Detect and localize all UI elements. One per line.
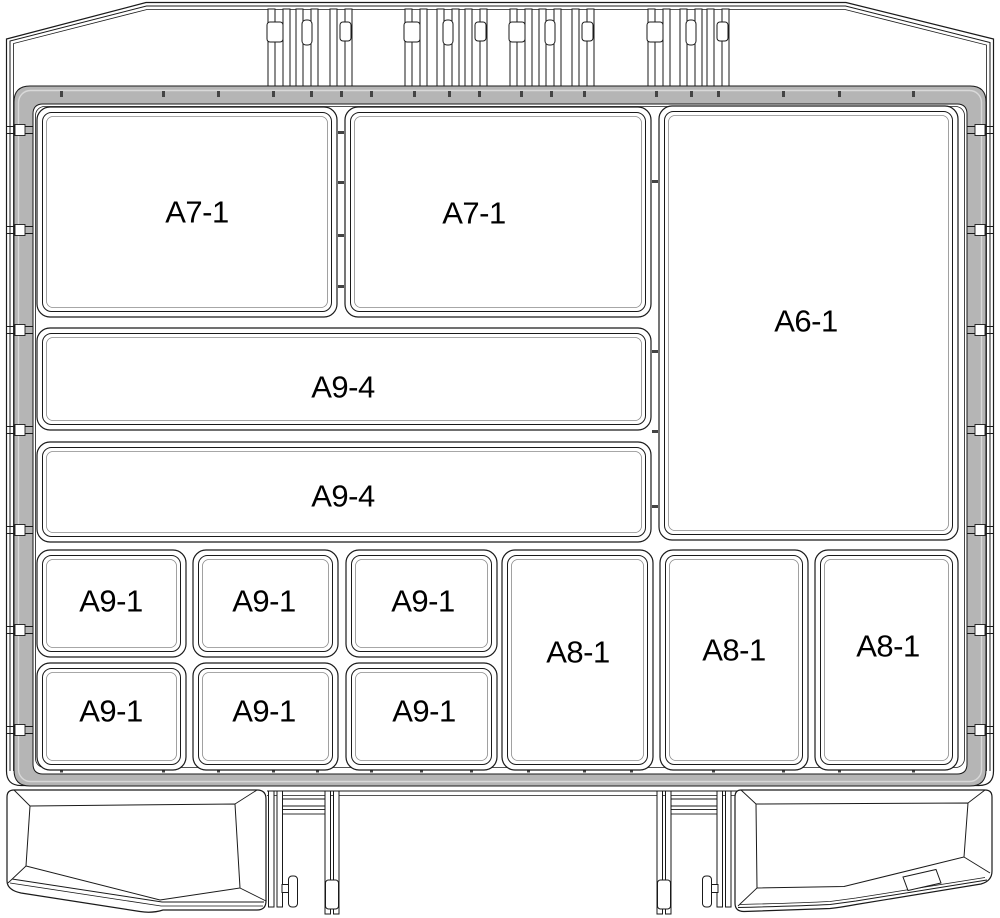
compartment-label: A9-1	[79, 584, 142, 619]
rim-side-clip-block	[15, 625, 25, 636]
rim-dash-mark	[448, 91, 451, 97]
rim-side-clip-block	[15, 125, 25, 136]
clip-bar	[554, 9, 561, 88]
clip-knob	[326, 880, 339, 909]
rim-side-clip-block	[975, 125, 985, 136]
technical-drawing-page: A7-1A7-1A6-1A9-4A9-4A9-1A9-1A9-1A8-1A8-1…	[0, 0, 1000, 918]
compartment: A8-1	[502, 550, 653, 770]
divider-dash-mark	[338, 131, 344, 134]
divider-dash-mark	[652, 430, 658, 433]
divider-dash-mark	[338, 285, 344, 288]
rim-dash-mark	[655, 91, 658, 97]
clip-latch-bump	[717, 22, 728, 41]
rim-dash-mark	[717, 91, 720, 97]
clip-latch-bump	[582, 22, 593, 41]
rim-dash-mark	[690, 91, 693, 97]
rim-side-clip-block	[15, 725, 25, 736]
rim-side-clip-block	[975, 625, 985, 636]
compartment-label: A8-1	[702, 633, 765, 668]
compartment: A7-1	[345, 107, 651, 317]
compartment-label: A9-1	[232, 694, 295, 729]
clip-knob	[289, 876, 298, 907]
clip-latch-bump	[545, 20, 555, 45]
divider-dash-mark	[338, 181, 344, 184]
rim-dash-mark	[583, 91, 586, 97]
compartment-label: A9-1	[79, 694, 142, 729]
organizer-insert-drawing: A7-1A7-1A6-1A9-4A9-4A9-1A9-1A9-1A8-1A8-1…	[0, 0, 1000, 918]
clip-bar	[695, 9, 702, 88]
clip-latch-bump	[443, 20, 453, 45]
compartment: A9-1	[193, 550, 338, 657]
compartment: A9-1	[346, 550, 497, 657]
clip-latch-bump	[267, 22, 283, 42]
rim-dash-mark	[370, 91, 373, 97]
compartment: A7-1	[37, 107, 337, 317]
rim-dash-mark	[272, 91, 275, 97]
clip-latch-bump	[475, 22, 486, 41]
clip-latch-bump	[647, 22, 663, 42]
left-foot	[7, 790, 266, 912]
rim-dash-mark	[413, 91, 416, 97]
compartment-label: A7-1	[165, 195, 228, 230]
bottom-clips	[269, 791, 732, 914]
clip-bar	[437, 9, 444, 88]
clip-post-bar	[726, 791, 732, 907]
clip-bar	[572, 9, 579, 88]
rim-dash-mark	[478, 91, 481, 97]
clip-cross-link	[671, 810, 717, 815]
clip-bar	[268, 9, 275, 88]
rim-side-clip-block	[975, 725, 985, 736]
rim-dash-mark	[550, 91, 553, 97]
compartment: A9-1	[37, 663, 186, 770]
clip-bar	[330, 9, 337, 88]
clip-cross-link	[671, 799, 717, 806]
clip-latch-bump	[509, 22, 525, 42]
clip-post-bar	[269, 791, 275, 907]
rim-side-clip-block	[15, 525, 25, 536]
clip-bar	[663, 9, 670, 88]
rim-dash-mark	[60, 91, 63, 97]
right-foot	[735, 790, 992, 912]
clip-bar	[405, 9, 412, 88]
clip-bar	[648, 9, 655, 88]
bottom-clip-post	[703, 791, 732, 907]
compartment: A8-1	[660, 550, 808, 770]
clip-latch-bump	[686, 20, 696, 45]
clip-cross-link	[283, 799, 326, 806]
divider-dash-mark	[338, 234, 344, 237]
clip-bar	[510, 9, 517, 88]
clip-bar	[539, 9, 546, 88]
rim-side-clip-block	[15, 225, 25, 236]
rim-side-clip-block	[15, 325, 25, 336]
clip-bar	[296, 9, 303, 88]
rim-dash-mark	[310, 91, 313, 97]
bottom-clip-post	[325, 791, 339, 914]
compartment-label: A8-1	[546, 635, 609, 670]
compartment: A9-4	[37, 442, 651, 542]
clip-bar	[311, 9, 318, 88]
rim-dash-mark	[838, 91, 841, 97]
compartment: A9-1	[37, 550, 186, 657]
clip-bar	[420, 9, 427, 88]
bottom-feet	[7, 790, 992, 912]
compartment: A9-4	[37, 328, 651, 430]
compartment-label: A9-1	[392, 694, 455, 729]
rim-side-clip-block	[15, 425, 25, 436]
compartment-label: A8-1	[856, 629, 919, 664]
clip-latch-bump	[302, 20, 312, 45]
bottom-clip-post	[269, 791, 298, 907]
compartment-label: A9-4	[311, 370, 375, 405]
rim-dash-mark	[162, 91, 165, 97]
rim-dash-mark	[912, 91, 915, 97]
compartment: A9-1	[193, 663, 338, 770]
clip-bar	[525, 9, 532, 88]
compartment-label: A7-1	[442, 196, 505, 231]
clip-knob	[703, 876, 712, 907]
rim-dash-mark	[782, 91, 785, 97]
compartment-label: A9-4	[311, 479, 375, 514]
clip-knob	[658, 880, 671, 909]
clip-bar	[283, 9, 290, 88]
clip-bar	[680, 9, 687, 88]
compartment: A9-1	[346, 663, 497, 770]
divider-dash-mark	[652, 180, 658, 183]
rim-side-clip-block	[975, 325, 985, 336]
compartment-label: A9-1	[391, 584, 454, 619]
rim-side-clip-block	[975, 425, 985, 436]
bottom-clip-post	[657, 791, 671, 914]
clip-bar	[452, 9, 459, 88]
rim-dash-mark	[520, 91, 523, 97]
compartment: A6-1	[659, 106, 958, 540]
clip-bar	[345, 9, 352, 88]
rim-side-clip-block	[975, 225, 985, 236]
clip-bar	[480, 9, 487, 88]
clip-bar	[587, 9, 594, 88]
rim-side-clip-block	[975, 525, 985, 536]
rim-dash-mark	[340, 91, 343, 97]
clip-bar	[722, 9, 729, 88]
compartment-label: A6-1	[774, 304, 837, 339]
rim-dash-mark	[217, 91, 220, 97]
compartment-label: A9-1	[232, 584, 295, 619]
clip-cross-link	[283, 810, 326, 815]
clip-latch-bump	[404, 22, 420, 42]
compartment: A8-1	[815, 550, 958, 770]
divider-dash-mark	[652, 505, 658, 508]
clip-latch-bump	[340, 22, 351, 41]
divider-dash-mark	[652, 350, 658, 353]
clip-bar	[707, 9, 714, 88]
clip-bar	[465, 9, 472, 88]
